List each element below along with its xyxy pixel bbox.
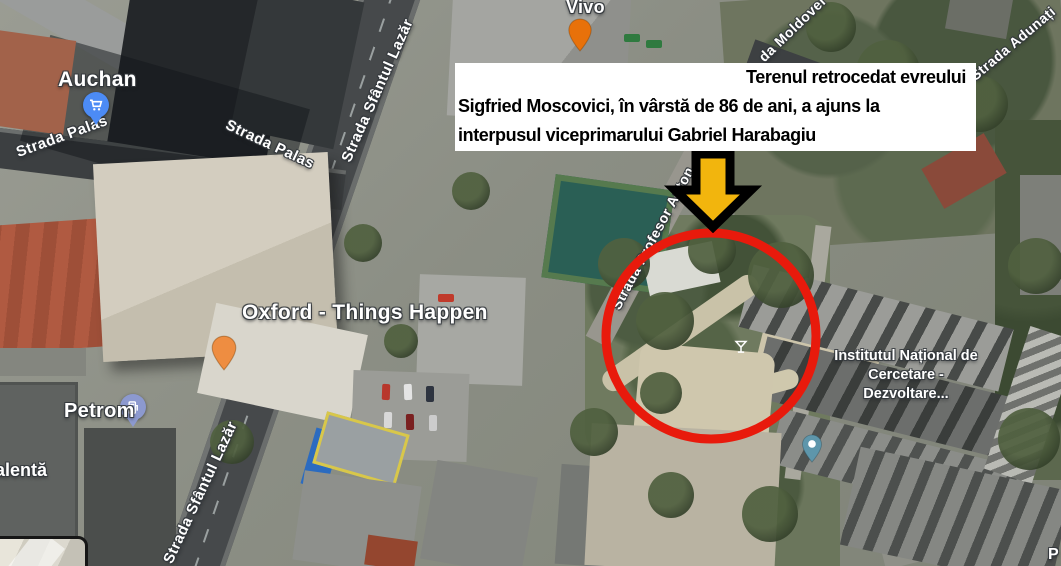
annotation-line-2: Sigfried Moscovici, în vârstă de 86 de a… [455, 92, 976, 121]
institut-pin[interactable] [801, 434, 1061, 468]
car [429, 415, 437, 431]
oxford-label[interactable]: Oxford - Things Happen [242, 301, 488, 325]
car [404, 384, 413, 400]
tree [742, 486, 798, 542]
tree [344, 224, 382, 262]
auchan-pin[interactable] [83, 92, 109, 118]
petrom-label[interactable]: Petrom [64, 400, 135, 423]
shopping-cart-icon [88, 97, 104, 113]
institut-label[interactable]: Institutul Național de Cercetare - Dezvo… [824, 347, 988, 404]
car [382, 384, 391, 400]
car [384, 412, 392, 428]
highlight-circle [596, 224, 826, 448]
building-terracotta-roof [0, 218, 111, 354]
highlight-arrow-down [663, 148, 763, 233]
building [420, 460, 538, 566]
tree [648, 472, 694, 518]
partial-label-alenta: alentă [0, 460, 47, 481]
partial-label-bottom-right: P [1048, 546, 1059, 564]
annotation-line-1: Terenul retrocedat evreului [455, 63, 976, 92]
tree [1008, 238, 1061, 294]
vivo-label[interactable]: Vivo [566, 0, 605, 18]
car [406, 414, 414, 430]
tree [452, 172, 490, 210]
building [0, 348, 86, 376]
vivo-pin[interactable] [567, 18, 1061, 57]
car [426, 386, 434, 402]
annotation-line-3: interpusul viceprimarului Gabriel Haraba… [455, 121, 976, 150]
annotation-text-box: Terenul retrocedat evreului Sigfried Mos… [455, 63, 976, 151]
auchan-label[interactable]: Auchan [58, 68, 137, 92]
map-inset-toggle[interactable] [0, 536, 88, 566]
satellite-map[interactable]: Strada Palas Strada Palas Strada Sfântul… [0, 0, 1061, 566]
building [84, 428, 176, 566]
